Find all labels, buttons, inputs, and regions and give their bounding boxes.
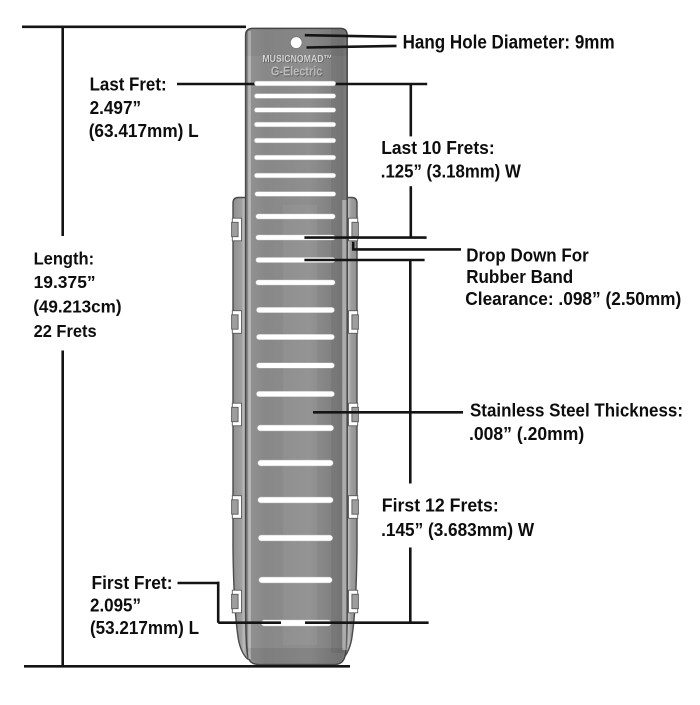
svg-text:.008” (.20mm): .008” (.20mm): [469, 424, 584, 444]
svg-text:Last Fret:: Last Fret:: [90, 74, 167, 94]
svg-text:Clearance: .098” (2.50mm): Clearance: .098” (2.50mm): [465, 289, 681, 309]
svg-text:G-Electric: G-Electric: [271, 64, 323, 79]
svg-text:(49.213cm): (49.213cm): [33, 296, 121, 316]
svg-text:2.095”: 2.095”: [90, 596, 141, 616]
svg-text:(53.217mm) L: (53.217mm) L: [90, 618, 199, 638]
svg-text:(63.417mm) L: (63.417mm) L: [89, 121, 199, 141]
svg-text:Rubber Band: Rubber Band: [466, 267, 573, 287]
svg-text:Last 10 Frets:: Last 10 Frets:: [381, 138, 495, 158]
svg-text:Hang Hole Diameter: 9mm: Hang Hole Diameter: 9mm: [403, 32, 615, 53]
svg-text:First Fret:: First Fret:: [92, 573, 173, 593]
svg-text:Stainless Steel Thickness:: Stainless Steel Thickness:: [470, 401, 683, 421]
svg-text:2.497”: 2.497”: [90, 98, 142, 118]
svg-text:.125” (3.18mm) W: .125” (3.18mm) W: [381, 161, 521, 181]
svg-text:.145” (3.683mm) W: .145” (3.683mm) W: [381, 520, 534, 540]
svg-text:First 12 Frets:: First 12 Frets:: [382, 496, 499, 516]
svg-text:22 Frets: 22 Frets: [34, 321, 97, 341]
svg-text:Length:: Length:: [34, 249, 95, 269]
svg-text:Drop Down For: Drop Down For: [466, 245, 589, 265]
svg-text:19.375”: 19.375”: [34, 272, 96, 292]
